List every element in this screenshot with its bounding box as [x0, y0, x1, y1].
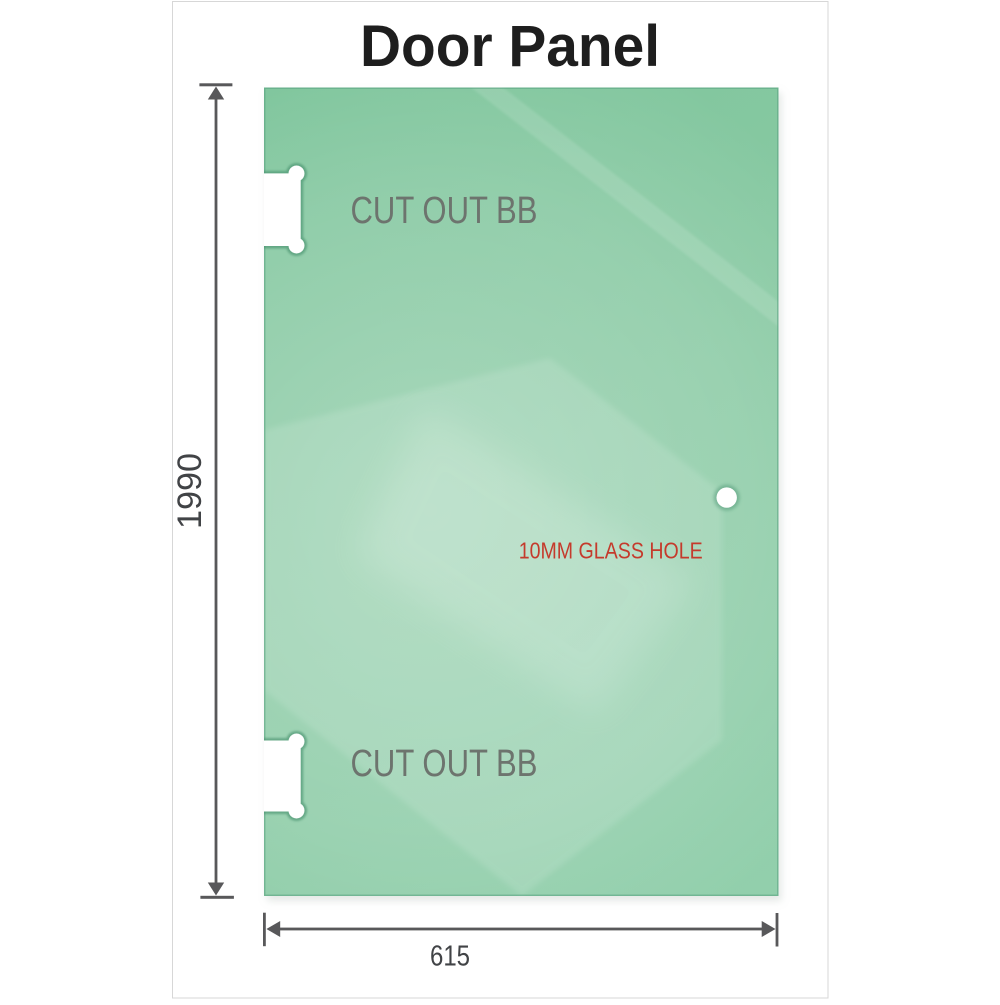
svg-text:CUT OUT BB: CUT OUT BB: [351, 743, 538, 785]
svg-text:CUT OUT BB: CUT OUT BB: [351, 190, 538, 232]
svg-text:615: 615: [430, 941, 470, 973]
svg-text:10MM GLASS HOLE: 10MM GLASS HOLE: [519, 538, 703, 564]
svg-text:1990: 1990: [171, 453, 209, 529]
svg-text:Door Panel: Door Panel: [360, 14, 660, 79]
